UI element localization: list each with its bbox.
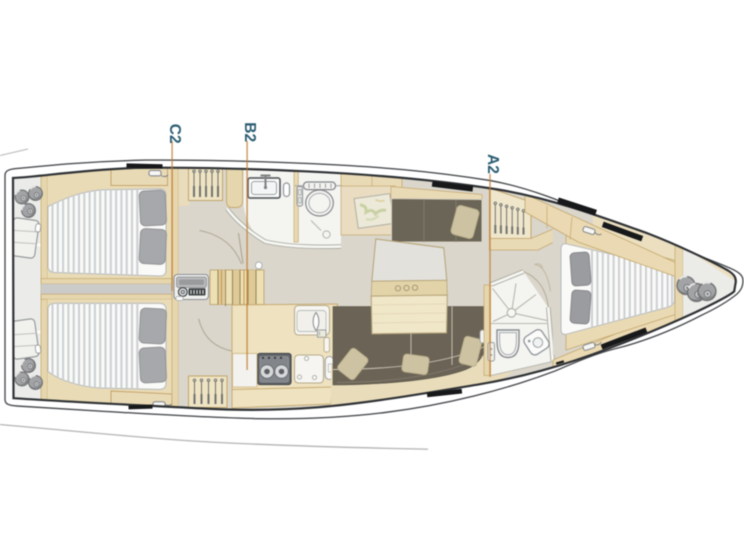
svg-text:B2: B2 xyxy=(241,122,258,142)
svg-text:A2: A2 xyxy=(484,154,501,174)
svg-text:C2: C2 xyxy=(166,124,183,144)
